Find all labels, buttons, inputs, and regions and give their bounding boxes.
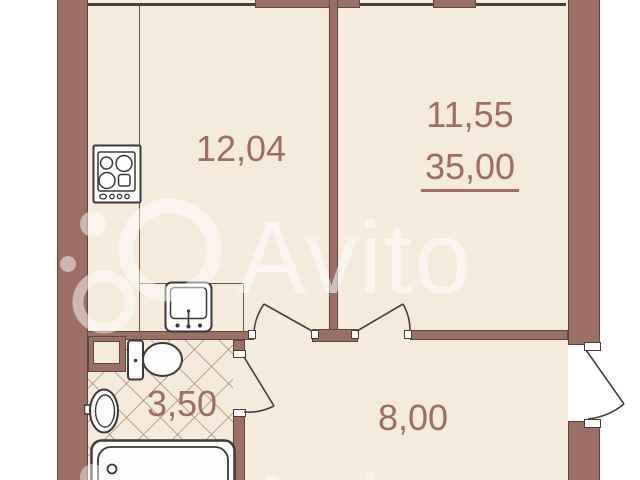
toilet-icon <box>126 339 186 381</box>
balcony-door <box>586 350 624 419</box>
stove-icon <box>92 144 142 204</box>
kitchen-door <box>254 304 312 331</box>
kitchen-area-label: 12,04 <box>186 131 296 167</box>
bathroom-door <box>244 357 274 412</box>
washbasin-icon <box>84 388 120 434</box>
bathtub-icon <box>90 439 236 480</box>
kitchen-sink-icon <box>164 281 214 333</box>
livingroom-area-label: 11,55 <box>415 97 525 133</box>
total-area-label: 35,00 <box>421 149 519 192</box>
livingroom-door <box>357 304 410 331</box>
floor-plan: 12,04 11,55 35,00 3,50 8,00 Avito Avito <box>0 0 640 480</box>
hallway-area-label: 8,00 <box>368 400 458 436</box>
bathroom-area-label: 3,50 <box>142 386 222 422</box>
